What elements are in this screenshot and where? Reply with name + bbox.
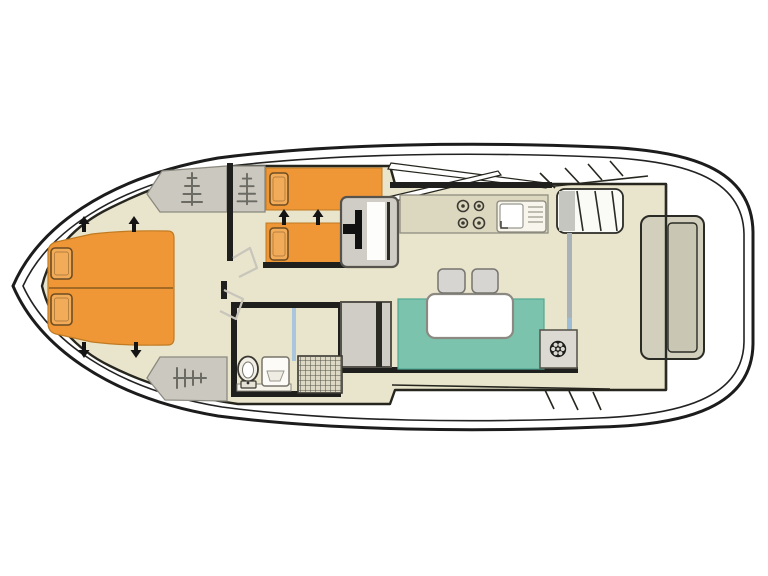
pillow xyxy=(51,248,72,279)
door-edge xyxy=(387,202,390,260)
toilet-icon xyxy=(238,357,258,389)
pillow xyxy=(51,294,72,325)
pillow xyxy=(270,228,288,260)
pillow xyxy=(270,173,288,205)
washbasin-icon xyxy=(262,357,289,386)
door-panel-inset xyxy=(367,202,385,260)
shower-icon xyxy=(298,356,342,393)
helm-station xyxy=(540,330,577,368)
wall xyxy=(390,182,552,188)
stool xyxy=(438,269,465,293)
door-edge xyxy=(376,302,382,367)
step-shaded xyxy=(559,191,575,231)
sink-icon xyxy=(497,201,546,232)
companionway-steps xyxy=(557,189,623,233)
boat-floor-plan xyxy=(0,0,768,576)
ships-wheel-icon xyxy=(550,341,566,357)
cabin-door-lower xyxy=(341,302,391,367)
shower-screen xyxy=(292,308,296,361)
wall xyxy=(263,262,347,268)
wall xyxy=(227,163,233,261)
floor-plan-canvas xyxy=(0,0,768,576)
wall xyxy=(231,302,346,308)
door-handle xyxy=(343,224,357,234)
stool xyxy=(472,269,498,293)
galley xyxy=(400,195,548,233)
dinette-table xyxy=(427,294,513,338)
sink-basin xyxy=(500,204,523,228)
stern-bench-back xyxy=(668,223,697,352)
cabin-door-upper xyxy=(341,197,398,267)
